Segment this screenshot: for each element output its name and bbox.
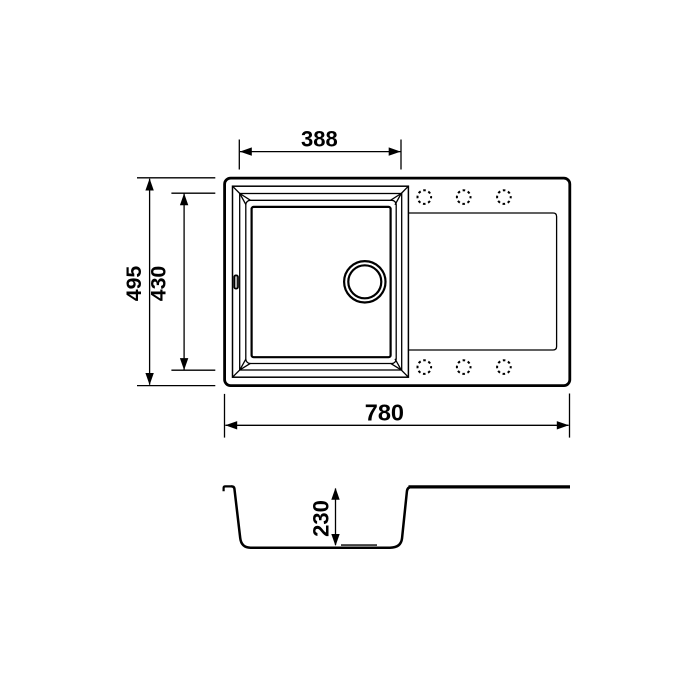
svg-text:430: 430 xyxy=(147,266,171,302)
svg-text:388: 388 xyxy=(301,127,338,152)
svg-text:495: 495 xyxy=(122,266,146,302)
svg-text:230: 230 xyxy=(308,500,333,537)
svg-text:780: 780 xyxy=(365,400,404,426)
